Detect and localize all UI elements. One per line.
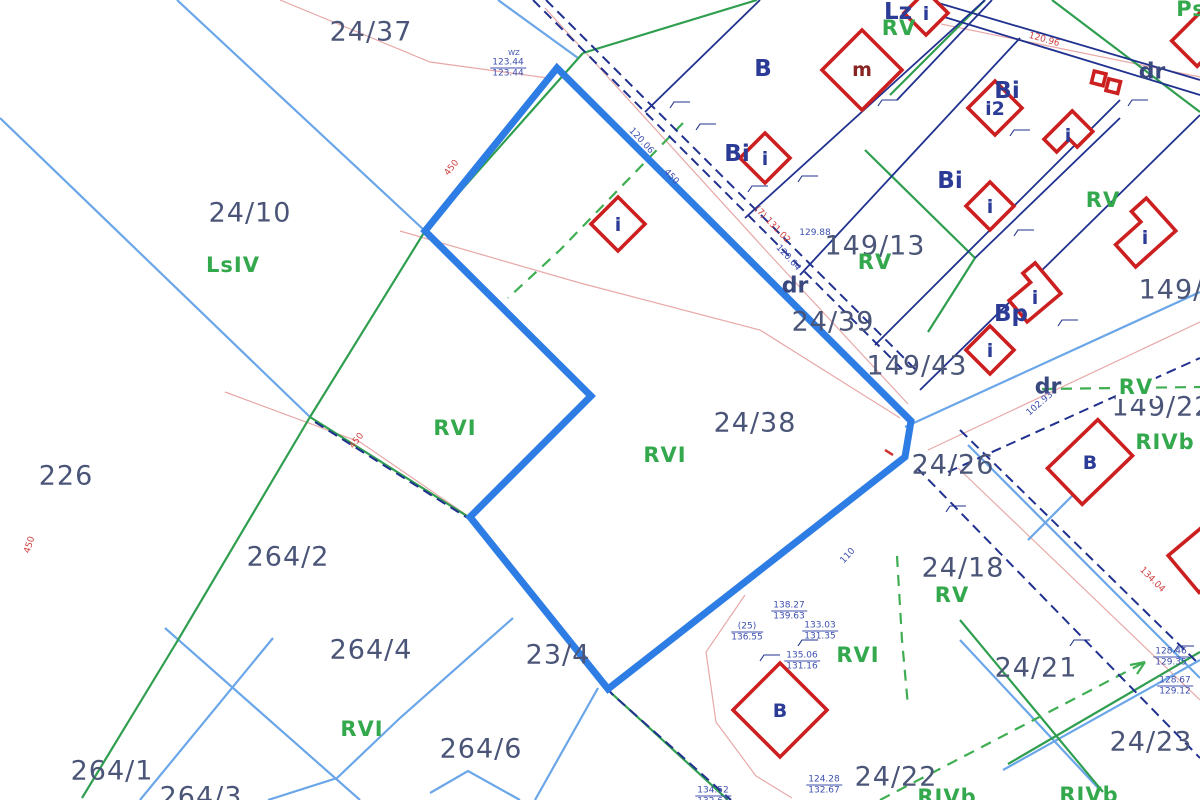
boundary-line [935,2,1200,80]
building-outline [1168,520,1200,593]
boundary-line [0,118,310,417]
building-outline [1090,71,1121,93]
survey-mark [760,655,780,661]
building-outline [966,182,1014,230]
building-outline [968,81,1022,135]
boundary-line [920,115,1200,390]
boundary-line [535,688,598,800]
boundary-line [1003,660,1200,770]
survey-mark [696,124,716,130]
boundary-line [310,53,583,417]
boundary-line [268,618,513,800]
cadastral-map-canvas[interactable]: 24/3724/1022624/3824/39149/13149/4324/26… [0,0,1200,800]
survey-mark [1058,320,1078,326]
survey-mark [798,640,818,646]
boundary-line [430,771,520,800]
survey-mark [798,176,818,182]
boundary-line [498,0,578,58]
building-outline [740,133,790,183]
building-outline [733,663,827,757]
boundary-line [960,620,1103,792]
building-outline [1106,198,1176,267]
survey-mark [670,102,690,108]
building-outline [822,30,902,110]
survey-mark [878,100,898,106]
building-outline [1001,263,1060,322]
building-outline [904,0,948,35]
boundary-line [897,556,908,706]
boundary-line [280,0,548,78]
survey-mark [1014,230,1034,236]
survey-mark [1128,100,1148,106]
building-outline [1047,420,1132,505]
boundary-line [917,468,1200,758]
survey-mark [1010,130,1030,136]
boundary-line [1042,387,1200,389]
boundary-line [177,0,425,231]
boundary-line [82,417,310,798]
boundary-line [165,628,360,800]
map-linework [0,0,1200,800]
survey-mark [748,186,768,192]
boundary-line [400,231,900,418]
building-outline [591,197,645,251]
boundary-line [583,0,757,53]
boundary-line [905,292,1200,427]
boundary-line [140,638,273,800]
boundary-line [941,16,1200,95]
boundary-line [865,150,975,332]
boundary-line [960,640,1100,790]
boundary-line [1008,652,1200,764]
boundary-line [508,123,683,298]
building-outline [966,326,1014,374]
boundary-line [885,450,893,455]
building-outline [1172,10,1200,67]
boundary-line [315,422,731,800]
